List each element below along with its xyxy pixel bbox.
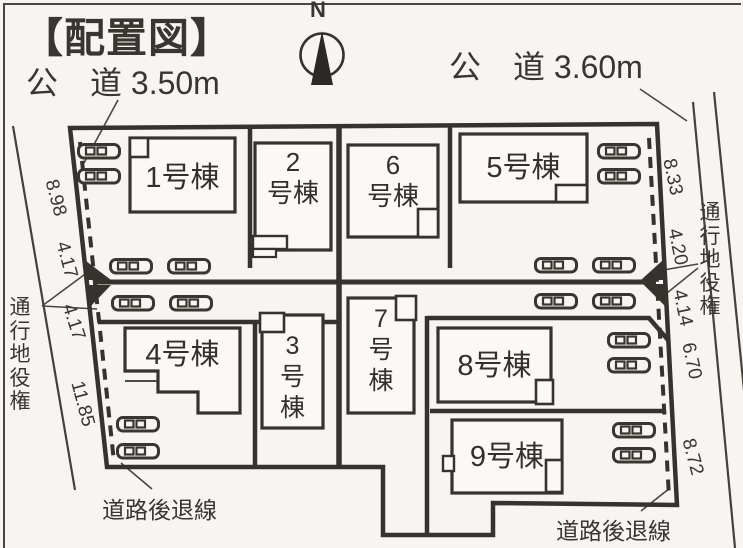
site-plan-page: 【配置図】 公 道 3.50m 公 道 3.60m N 8.98 4.17 4.… xyxy=(0,0,743,548)
car-icon xyxy=(113,297,154,311)
car-icon xyxy=(111,260,152,274)
building-2-label: 2 号棟 xyxy=(255,147,331,208)
corner-flare-left-upper xyxy=(86,261,111,280)
corner-flare-right-upper xyxy=(641,260,663,280)
car-icon xyxy=(594,295,635,309)
building-4-label: 4号棟 xyxy=(125,329,240,375)
car-icon xyxy=(536,295,577,309)
car-icon xyxy=(594,259,635,273)
car-icon xyxy=(609,359,650,373)
car-icon xyxy=(118,445,159,459)
setback-label-right: 道路後退線 xyxy=(556,512,671,546)
car-icon xyxy=(614,449,655,463)
corner-flare-right-lower xyxy=(643,284,665,306)
building-1-label: 1号棟 xyxy=(130,138,235,212)
car-icon xyxy=(118,418,159,432)
leader-road-right xyxy=(640,89,687,121)
car-icon xyxy=(536,259,577,273)
leader-setback-right xyxy=(641,488,670,511)
north-letter: N xyxy=(310,0,326,23)
building-8-label: 8号棟 xyxy=(438,330,551,396)
building-7-label: 7 号 棟 xyxy=(348,304,414,397)
setback-label-left: 道路後退線 xyxy=(102,491,217,525)
road-label-left: 公 道 3.50m xyxy=(26,58,220,104)
corner-flare-left-lower xyxy=(88,285,111,307)
car-icon xyxy=(599,145,640,159)
easement-label-right: 通 行 地 役 権 xyxy=(696,201,724,319)
car-icon xyxy=(614,424,655,438)
road-label-right: 公 道 3.60m xyxy=(449,42,643,88)
car-icon xyxy=(79,170,120,184)
car-icon xyxy=(599,170,640,184)
car-icon xyxy=(171,297,212,311)
page-title: 【配置図】 xyxy=(22,4,232,64)
building-3-label: 3 号 棟 xyxy=(262,331,323,424)
building-9-label: 9号棟 xyxy=(452,423,562,485)
easement-label-left: 通 行 地 役 権 xyxy=(6,296,34,414)
car-icon xyxy=(79,145,120,159)
car-icon xyxy=(169,260,210,274)
building-5-label: 5号棟 xyxy=(460,134,587,196)
road-edge-right-outer xyxy=(693,102,735,548)
car-icon xyxy=(609,334,650,348)
north-compass-icon xyxy=(301,31,344,85)
building-6-label: 6 号棟 xyxy=(348,150,438,211)
